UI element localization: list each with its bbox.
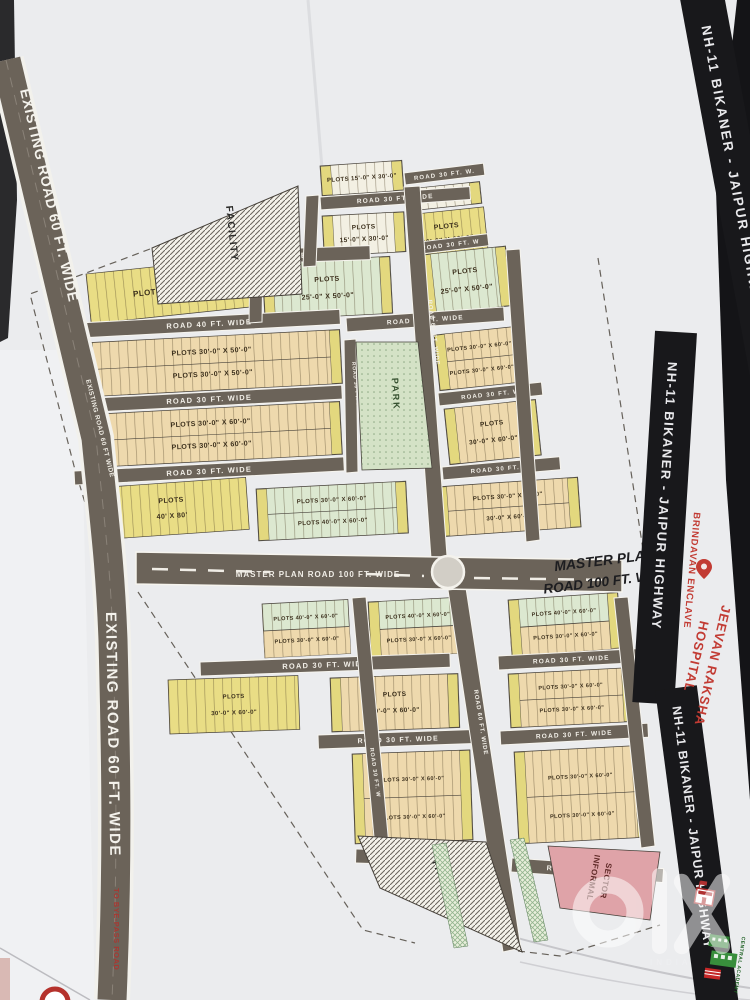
site-plan-photo: PLOTS 15'-0" X 30'-0"PLOTS15'-0" X 30'-0… — [0, 0, 750, 1000]
plot-block: PLOTS 30'-0" X 60'-0"PLOTS 40'-0" X 60'-… — [256, 481, 409, 541]
photo-edge-bottom-left — [0, 958, 10, 1000]
vertical-road — [303, 195, 319, 267]
plot-block: PLOTS 30'-0" X 60'-0"30'-0" X 60'-0" — [436, 477, 581, 537]
master-plan-map: PLOTS 15'-0" X 30'-0"PLOTS15'-0" X 30'-0… — [0, 0, 750, 1000]
plot-block: PLOTS 40'-0" X 60'-0"PLOTS 30'-0" X 60'-… — [508, 592, 622, 656]
plot-block: PLOTS30'-0" X 60'-0" — [168, 675, 300, 734]
plot-block-label: PLOTS — [223, 694, 245, 701]
plot-block: PLOTS 40'-0" X 60'-0"PLOTS 30'-0" X 60'-… — [262, 599, 351, 657]
plot-block-label: PLOTS — [383, 691, 407, 699]
partial-logo-circle — [42, 989, 68, 1000]
plot-block-label: PLOTS — [352, 223, 376, 231]
olx-india-label: INDIA — [650, 958, 691, 967]
bypass-label: TO BYE-PASS ROAD — [112, 888, 121, 970]
park-label: PARK — [390, 378, 402, 411]
roundabout — [432, 556, 464, 588]
plot-block: PLOTS 30'-0" X 60'-0"PLOTS 30'-0" X 60'-… — [508, 668, 635, 728]
plot-block-label: PLOTS — [314, 276, 340, 284]
plot-block: PLOTS 15'-0" X 30'-0" — [320, 160, 404, 196]
plot-block: PLOTS 30'-0" X 60'-0"PLOTS 30'-0" X 60'-… — [514, 745, 649, 844]
master-plan-road-label: MASTER PLAN ROAD 100 FT. WIDE — [236, 570, 401, 579]
olx-logo-l — [652, 868, 667, 954]
plot-block: PLOTS25'-0" X 50'-0" — [420, 246, 512, 315]
plot-block: PLOTS30'-0" X 60'-0" — [330, 674, 460, 732]
